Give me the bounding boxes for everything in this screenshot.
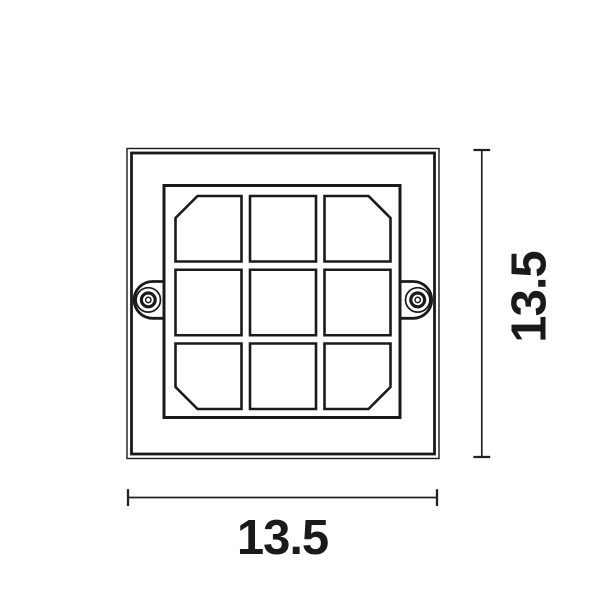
height-dimension: 13.5 [473,150,556,457]
screw-left-icon [136,288,160,312]
louver-cell-top-middle [250,196,316,262]
width-dimension-label: 13.5 [237,511,328,565]
width-dimension: 13.5 [128,489,437,565]
screw-right-outer-circle [406,288,430,312]
louver-cell-middle-middle [250,270,316,336]
louver-cell-middle-right [325,270,391,336]
technical-drawing-page: 13.5 13.5 [0,0,600,600]
fixture-dimension-drawing: 13.5 13.5 [0,0,600,600]
height-dimension-label: 13.5 [503,251,557,342]
screw-left-outer-circle [136,288,160,312]
louver-cell-bottom-middle [250,344,316,410]
screw-right-icon [406,288,430,312]
louver-cell-middle-left [176,270,242,336]
